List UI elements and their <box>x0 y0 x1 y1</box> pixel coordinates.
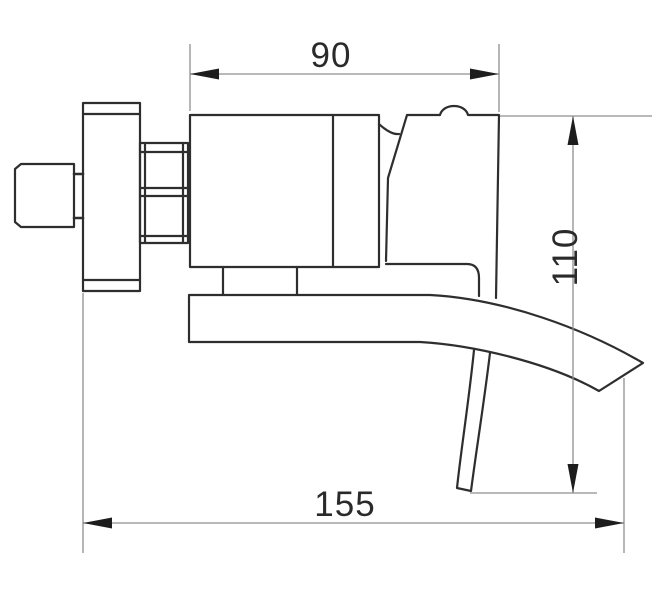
valve-body <box>190 115 379 267</box>
dim-110-label: 110 <box>546 228 585 287</box>
escutcheon-cover <box>386 264 479 296</box>
wall-plate <box>83 103 140 291</box>
dim-90-arrow-right <box>470 69 499 80</box>
connector-nut <box>140 143 188 243</box>
spout-neck <box>223 267 297 294</box>
waterfall-spout <box>189 295 643 391</box>
dim-155-arrow-left <box>83 518 112 529</box>
dim-110-arrow-down <box>568 464 579 493</box>
drawing-canvas: 90 110 155 <box>0 0 661 600</box>
dim-90-arrow-left <box>190 69 219 80</box>
water-stream <box>457 350 490 491</box>
dim-155-label: 155 <box>314 485 375 524</box>
dimension-labels: 90 110 155 <box>311 36 585 524</box>
valve-housing <box>379 106 499 298</box>
faucet-dimension-drawing: 90 110 155 <box>0 0 661 600</box>
dimension-lines <box>83 44 652 553</box>
dim-90-label: 90 <box>311 36 352 75</box>
dim-110-arrow-up <box>568 116 579 145</box>
handle-stems <box>74 174 83 218</box>
handle-knob <box>15 164 74 227</box>
part-outlines <box>15 103 643 491</box>
dimension-arrowheads <box>83 69 624 529</box>
dim-155-arrow-right <box>595 518 624 529</box>
